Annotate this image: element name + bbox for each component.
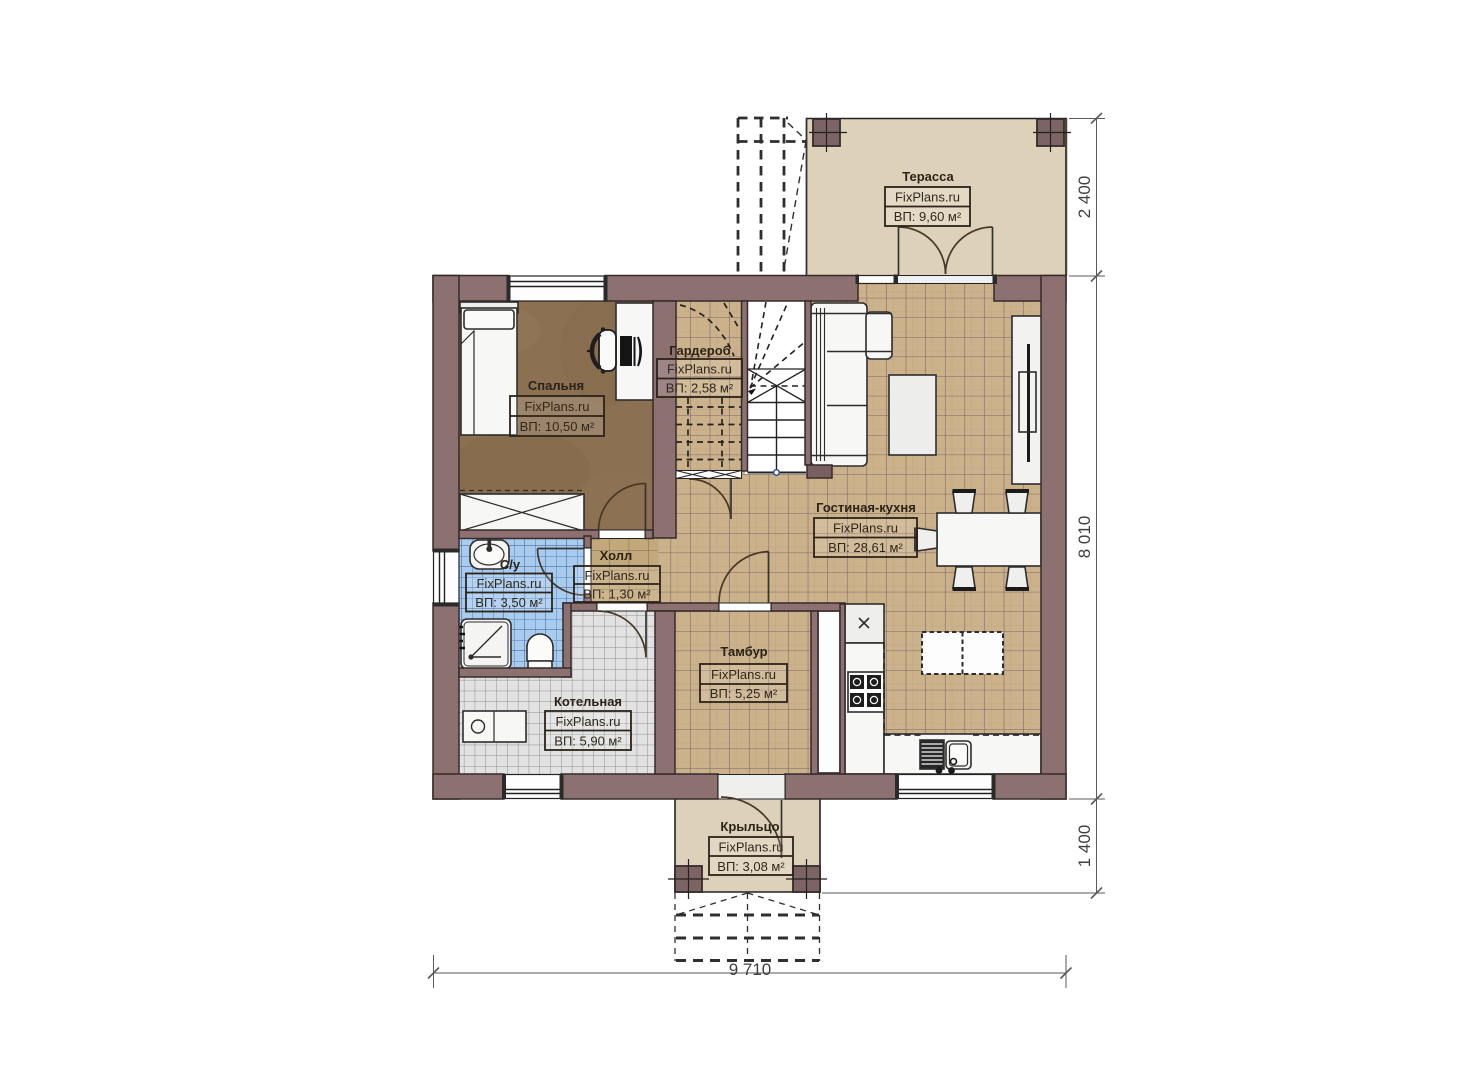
svg-text:ВП: 5,25 м²: ВП: 5,25 м² bbox=[710, 686, 778, 701]
svg-text:FixPlans.ru: FixPlans.ru bbox=[476, 576, 541, 591]
svg-text:8 010: 8 010 bbox=[1075, 516, 1094, 559]
svg-text:ВП: 9,60 м²: ВП: 9,60 м² bbox=[894, 209, 962, 224]
svg-text:FixPlans.ru: FixPlans.ru bbox=[584, 568, 649, 583]
svg-text:Гардероб: Гардероб bbox=[669, 343, 730, 358]
svg-text:Гостиная-кухня: Гостиная-кухня bbox=[816, 500, 916, 515]
svg-text:Спальня: Спальня bbox=[528, 378, 584, 393]
svg-text:FixPlans.ru: FixPlans.ru bbox=[524, 399, 589, 414]
svg-text:1 400: 1 400 bbox=[1075, 825, 1094, 868]
svg-text:ВП: 10,50 м²: ВП: 10,50 м² bbox=[520, 419, 595, 434]
svg-text:ВП: 28,61 м²: ВП: 28,61 м² bbox=[828, 540, 903, 555]
svg-text:FixPlans.ru: FixPlans.ru bbox=[895, 190, 960, 205]
svg-text:FixPlans.ru: FixPlans.ru bbox=[718, 840, 783, 855]
svg-text:Тамбур: Тамбур bbox=[720, 644, 767, 659]
svg-text:Крыльцо: Крыльцо bbox=[720, 819, 779, 834]
svg-text:Котельная: Котельная bbox=[554, 694, 622, 709]
svg-text:ВП: 2,58 м²: ВП: 2,58 м² bbox=[666, 381, 734, 396]
svg-text:FixPlans.ru: FixPlans.ru bbox=[555, 714, 620, 729]
svg-text:Холл: Холл bbox=[600, 548, 633, 563]
svg-text:FixPlans.ru: FixPlans.ru bbox=[711, 667, 776, 682]
svg-text:С/у: С/у bbox=[500, 557, 521, 572]
svg-text:Терасса: Терасса bbox=[902, 169, 954, 184]
svg-text:ВП: 3,50 м²: ВП: 3,50 м² bbox=[475, 595, 543, 610]
svg-text:9 710: 9 710 bbox=[729, 960, 772, 979]
svg-text:ВП: 5,90 м²: ВП: 5,90 м² bbox=[554, 734, 622, 749]
svg-text:2 400: 2 400 bbox=[1075, 176, 1094, 219]
svg-text:ВП: 3,08 м²: ВП: 3,08 м² bbox=[717, 859, 785, 874]
svg-text:FixPlans.ru: FixPlans.ru bbox=[833, 521, 898, 536]
svg-text:FixPlans.ru: FixPlans.ru bbox=[667, 362, 732, 377]
svg-text:ВП: 1,30 м²: ВП: 1,30 м² bbox=[583, 587, 651, 602]
